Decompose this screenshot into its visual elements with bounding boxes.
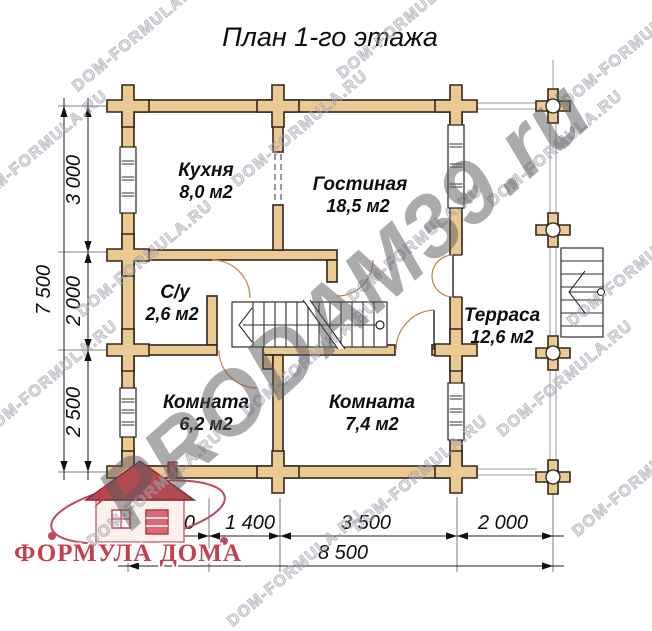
- logo-house-body: [96, 500, 184, 542]
- dim-bottom-seg3: 3 500: [341, 512, 391, 534]
- living-room-label: Гостиная: [313, 174, 408, 195]
- floor-plan: План 1-го этажа 7 500 3 000 2 000 2 5: [0, 0, 652, 600]
- dim-bottom-seg4: 2 000: [477, 512, 528, 534]
- bedroom-right-area: 7,4 м2: [345, 414, 398, 434]
- kitchen-window: [120, 147, 136, 213]
- bedroom-left-window: [120, 388, 136, 437]
- wall-bathroom-right: [207, 296, 217, 345]
- kitchen-label: Кухня: [178, 160, 233, 181]
- living-room-area: 18,5 м2: [326, 196, 389, 216]
- terrace-door-gap: [449, 255, 463, 297]
- dim-bottom-total: 8 500: [318, 542, 368, 564]
- wall-stub-stairs: [263, 355, 273, 369]
- stairs-outdoor: [561, 248, 605, 337]
- stairs-indoor: [232, 300, 387, 349]
- bedroom-right-label: Комната: [329, 392, 416, 413]
- hall-door-arc: [337, 260, 373, 296]
- bedroom-left-door-arc: [219, 350, 257, 388]
- wall-kitchen-right-b: [273, 205, 283, 250]
- dim-left-seg3: 2 500: [63, 387, 85, 438]
- terrace-area: 12,6 м2: [470, 327, 533, 347]
- bathroom-area: 2,6 м2: [144, 304, 198, 324]
- bedroom-right-window: [448, 383, 464, 440]
- page-title: План 1-го этажа: [222, 22, 438, 52]
- logo-dot-left: [48, 532, 56, 540]
- wall-bedroom-divider: [273, 355, 283, 466]
- wall-kitchen-bottom: [134, 250, 337, 260]
- terrace-label: Терраса: [464, 305, 541, 326]
- wall-jamb-hall: [327, 260, 337, 282]
- bedroom-left-area: 6,2 м2: [179, 414, 232, 434]
- kitchen-opening-dashed: [275, 154, 281, 204]
- bathroom-door-arc: [212, 260, 250, 298]
- living-room-window: [448, 125, 464, 208]
- stair-newel-post: [376, 321, 384, 329]
- outdoor-stair-newel: [598, 289, 605, 296]
- bathroom-label: С/у: [160, 282, 191, 303]
- dim-bottom-seg2: 1 400: [225, 512, 275, 534]
- bedroom-left-label: Комната: [163, 392, 250, 413]
- room-labels: Кухня 8,0 м2 Гостиная 18,5 м2 С/у 2,6 м2…: [144, 160, 540, 434]
- terrace-railings: [472, 60, 556, 475]
- dim-left-seg1: 3 000: [63, 155, 85, 205]
- dim-left-seg2: 2 000: [63, 276, 85, 327]
- dim-left-total: 7 500: [33, 265, 55, 315]
- logo-wordmark: ФОРМУЛА ДОМА: [14, 540, 242, 567]
- logo-chimney: [168, 462, 177, 478]
- logo-window-right: [146, 510, 168, 534]
- bedroom-right-door-arc: [396, 310, 434, 350]
- kitchen-area: 8,0 м2: [179, 182, 232, 202]
